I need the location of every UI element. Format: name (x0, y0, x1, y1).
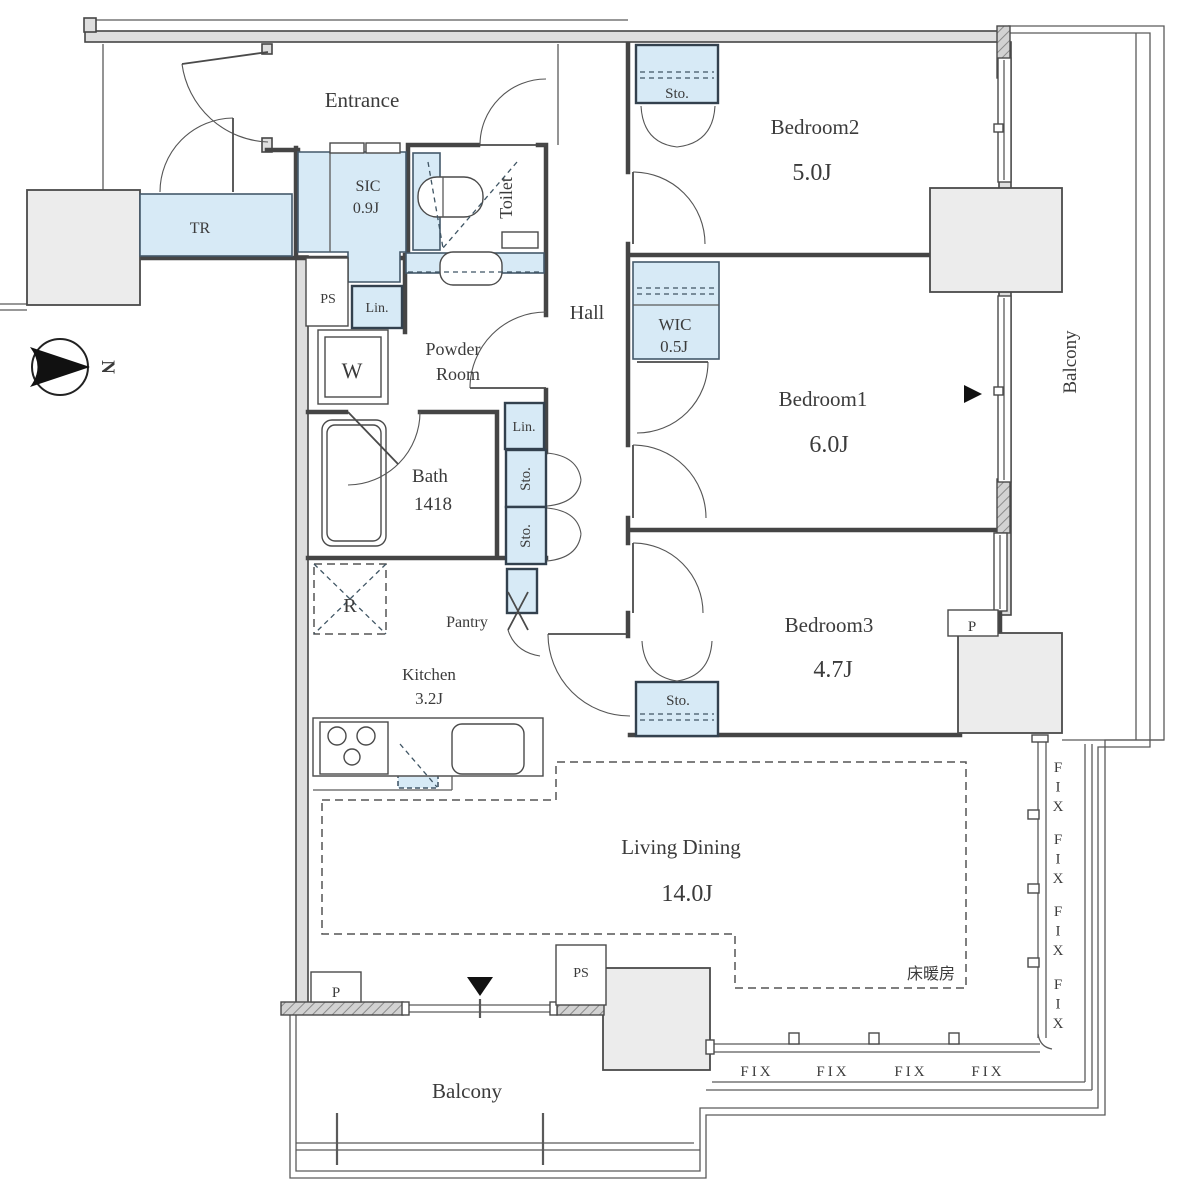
pillar-top-right (930, 188, 1062, 292)
fix-mullion (869, 1033, 879, 1044)
label-sto-bedroom2: Sto. (665, 86, 689, 102)
sic-sliding-door (366, 143, 400, 153)
stove-burner (357, 727, 375, 745)
sto-bedroom3-box (636, 682, 718, 736)
label-living-dining: Living Dining (621, 835, 741, 859)
label-bedroom1: Bedroom1 (779, 387, 868, 411)
window-tick (994, 124, 1003, 132)
floor-plan-drawing: N Entrance Hall Toilet TR SIC 0.9J Powde… (0, 0, 1190, 1200)
label-sto-bedroom3: Sto. (666, 693, 690, 709)
kitchen-sink (452, 724, 524, 774)
label-ps-bottom: PS (573, 966, 589, 981)
window-tick (994, 387, 1003, 395)
label-bedroom1-size: 6.0J (809, 432, 848, 458)
shaft-boxes (306, 258, 998, 1005)
label-bedroom3-size: 4.7J (813, 657, 852, 683)
floor-plan-page: N Entrance Hall Toilet TR SIC 0.9J Powde… (0, 0, 1190, 1200)
label-fix-right-1: FIX (1053, 760, 1064, 815)
fix-glazing (706, 735, 1052, 1054)
label-pantry: Pantry (446, 614, 488, 631)
label-bath-size: 1418 (414, 494, 452, 515)
label-p-bedroom3: P (968, 619, 976, 635)
toilet-bowl (418, 177, 483, 217)
washbasin (440, 252, 502, 285)
label-linen-upper: Lin. (366, 301, 389, 316)
label-kitchen-size: 3.2J (415, 689, 443, 708)
wall-left (296, 256, 308, 1008)
label-sto-hall-lower: Sto. (518, 524, 534, 548)
label-p-balcony: P (332, 985, 340, 1001)
fix-mullion (789, 1033, 799, 1044)
label-bath: Bath (412, 466, 448, 487)
tr-room-box (140, 194, 292, 256)
fix-mullion (1028, 958, 1039, 967)
fix-mullion (949, 1033, 959, 1044)
compass: N (30, 339, 118, 395)
porch-edge (103, 44, 140, 192)
fix-corner (1038, 1034, 1052, 1049)
label-tr: TR (190, 220, 211, 237)
hatched-wall-left (281, 1002, 403, 1015)
label-washer: W (342, 358, 363, 383)
wall-top (85, 31, 1008, 42)
slide-direction-right-icon (964, 385, 982, 403)
pantry-box (507, 569, 537, 613)
label-powder-1: Powder (426, 339, 481, 359)
fix-jamb (706, 1040, 714, 1054)
bifold-doors (547, 106, 715, 681)
compass-north-label: N (97, 360, 118, 374)
floor-heating-boundary (322, 762, 966, 988)
label-wic-size: 0.5J (660, 337, 688, 356)
label-balcony-side: Balcony (1060, 330, 1081, 394)
toilet-shelf (502, 232, 538, 248)
window-jamb (402, 1002, 409, 1015)
label-bedroom3: Bedroom3 (785, 613, 874, 637)
label-linen-lower: Lin. (513, 420, 536, 435)
label-balcony-bottom: Balcony (432, 1079, 502, 1103)
label-wic: WIC (658, 315, 691, 334)
label-sto-hall-upper: Sto. (518, 467, 534, 491)
label-living-dining-size: 14.0J (661, 881, 712, 907)
stove-burner (328, 727, 346, 745)
fix-mullion (1028, 810, 1039, 819)
fix-bottom-lines (712, 1044, 1040, 1052)
label-fix-right-2: FIX (1053, 832, 1064, 887)
label-fix-bottom-3: FIX (894, 1064, 927, 1080)
slide-direction-down-icon (467, 977, 493, 996)
label-fix-right-4: FIX (1053, 977, 1064, 1032)
label-floor-heating: 床暖房 (907, 965, 955, 983)
label-toilet: Toilet (496, 177, 516, 219)
bathtub-inner (327, 425, 381, 541)
hatched-pier-right (997, 479, 1010, 533)
label-ps-top: PS (320, 292, 336, 307)
label-fix-bottom-1: FIX (740, 1064, 773, 1080)
stove-burner (344, 749, 360, 765)
label-entrance: Entrance (325, 88, 400, 112)
label-refrigerator: R (343, 595, 357, 617)
label-bedroom2: Bedroom2 (771, 115, 860, 139)
balcony-rail-ticks (337, 1113, 543, 1165)
sic-sliding-door (330, 143, 364, 153)
label-fix-right-3: FIX (1053, 904, 1064, 959)
label-sic-size: 0.9J (353, 200, 379, 217)
label-powder-2: Room (436, 364, 480, 384)
label-sic: SIC (356, 178, 381, 195)
pillar-outside-left (27, 190, 140, 305)
doors (160, 52, 715, 716)
label-hall: Hall (570, 302, 605, 324)
label-fix-bottom-2: FIX (816, 1064, 849, 1080)
label-bedroom2-size: 5.0J (792, 160, 831, 186)
label-kitchen: Kitchen (402, 665, 456, 684)
label-fix-bottom-4: FIX (971, 1064, 1004, 1080)
compass-needle-icon (30, 347, 90, 387)
structural-pillars (27, 188, 1062, 1070)
wall-stub-topleft (84, 18, 96, 32)
pillar-bottom-middle (603, 968, 710, 1070)
fix-mullion (1028, 884, 1039, 893)
pillar-mid-right (958, 633, 1062, 733)
fix-jamb (1032, 735, 1048, 742)
